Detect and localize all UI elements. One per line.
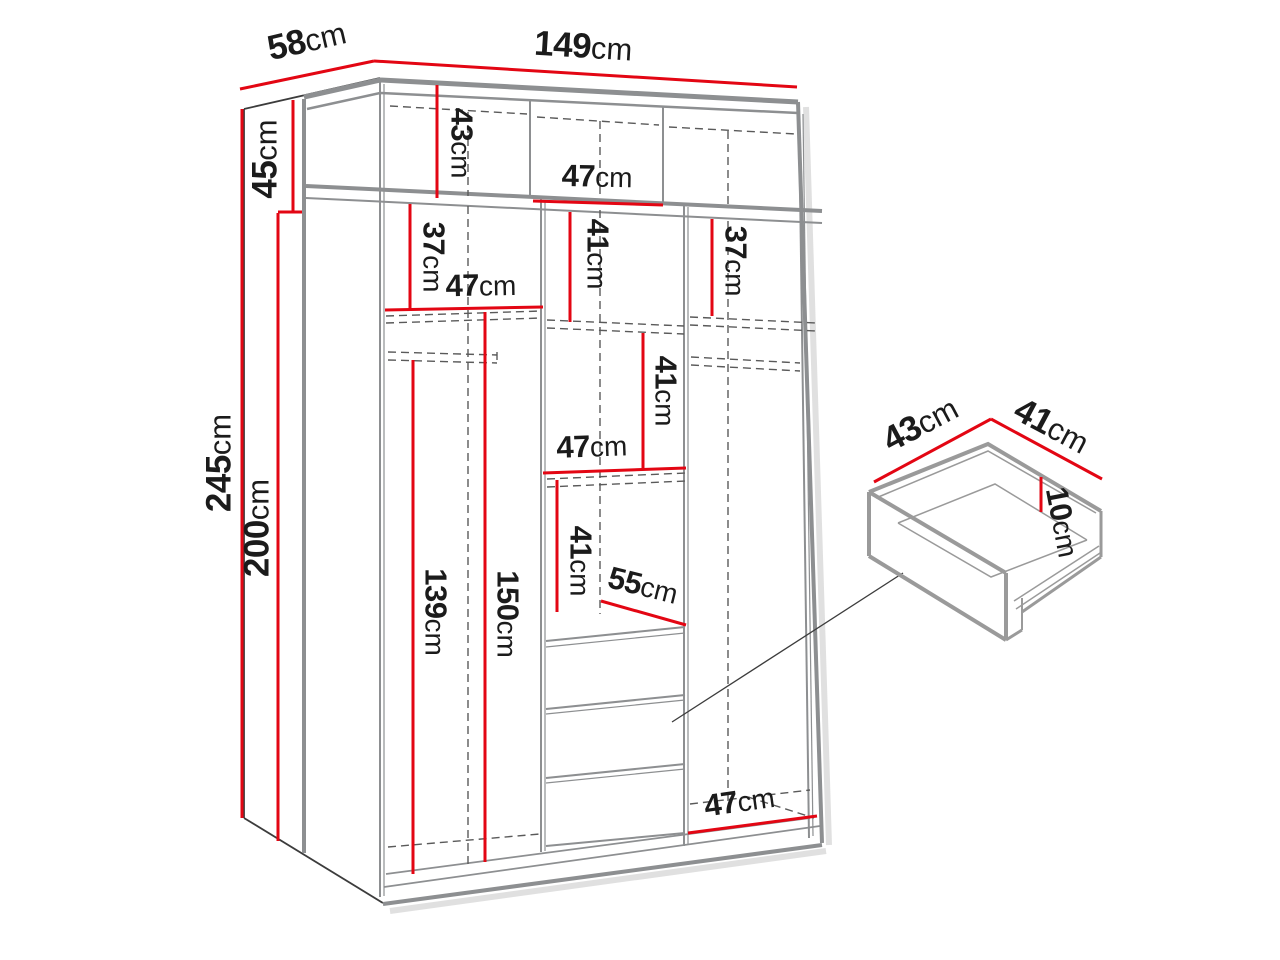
diagram-page: 58cm 149cm 45cm 245cm 200cm 43cm 47cm 37… bbox=[0, 0, 1280, 960]
drawer-stack bbox=[546, 627, 685, 846]
dim-left-inner-height-label: 150cm bbox=[490, 570, 525, 658]
dim-top-shelf-height-label: 43cm bbox=[444, 108, 479, 179]
dim-right-upper-shelf-label: 37cm bbox=[718, 226, 753, 297]
dimension-lines bbox=[240, 61, 817, 874]
dim-left-hanging-height-label: 139cm bbox=[418, 568, 453, 656]
dim-middle-shelf-width-label: 47cm bbox=[556, 427, 628, 464]
wardrobe-diagram: 58cm 149cm 45cm 245cm 200cm 43cm 47cm 37… bbox=[0, 0, 1280, 960]
dim-middle-upper-shelf-label: 41cm bbox=[580, 219, 615, 290]
dim-left-shelf-width-label: 47cm bbox=[445, 267, 516, 303]
dim-middle-third-shelf-label: 41cm bbox=[563, 526, 598, 597]
dimension-labels: 58cm 149cm 45cm 245cm 200cm 43cm 47cm 37… bbox=[200, 12, 1096, 823]
dim-upper-height-label: 45cm bbox=[246, 119, 285, 198]
dim-drawer-height-label: 10cm bbox=[1039, 484, 1087, 560]
dim-total-height-label: 245cm bbox=[200, 414, 239, 512]
dim-depth-label: 58cm bbox=[264, 12, 350, 68]
dim-body-height-label: 200cm bbox=[238, 479, 277, 577]
leader-line bbox=[672, 573, 903, 722]
dim-top-middle-width-label: 47cm bbox=[561, 158, 632, 194]
dim-middle-second-shelf-label: 41cm bbox=[648, 356, 683, 427]
dim-drawer-front-width-label: 55cm bbox=[605, 560, 682, 611]
dim-drawer-depth-label: 43cm bbox=[876, 388, 964, 460]
dim-right-bottom-width-label: 47cm bbox=[702, 779, 777, 824]
dim-width-label: 149cm bbox=[533, 24, 633, 69]
